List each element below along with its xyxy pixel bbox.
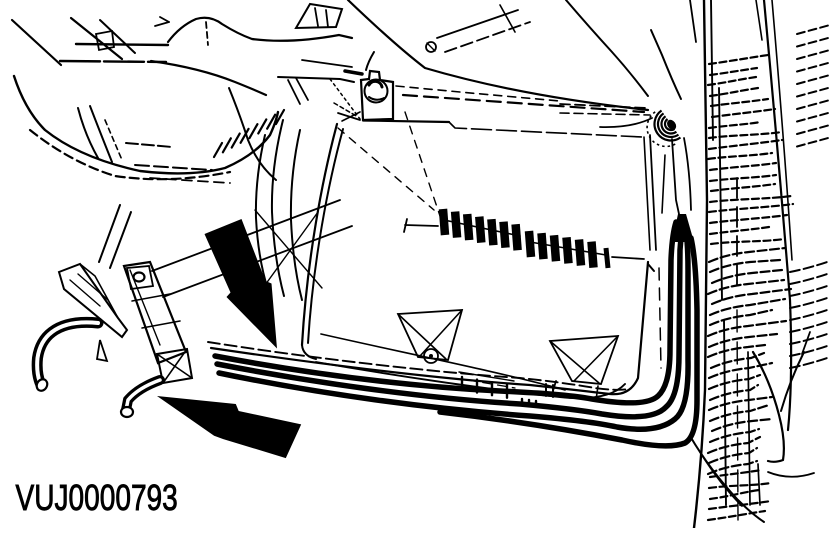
svg-text:VUJ0000793: VUJ0000793 bbox=[16, 478, 178, 518]
